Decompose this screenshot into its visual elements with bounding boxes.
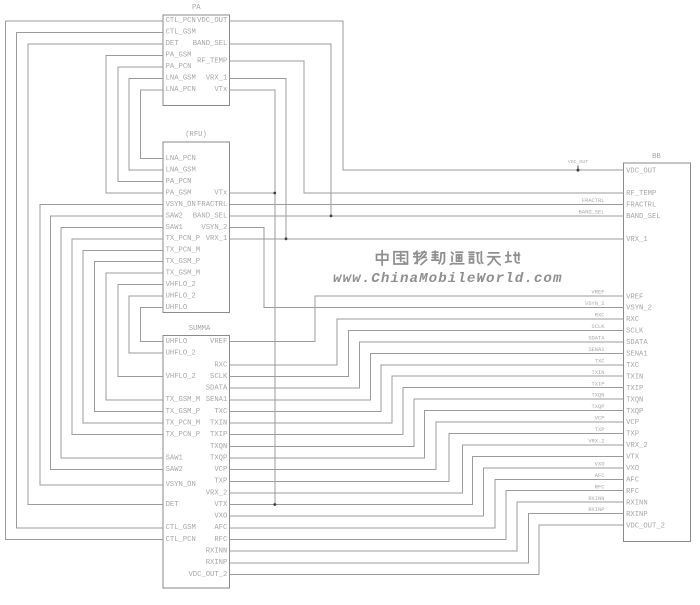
svg-text:TXC: TXC xyxy=(595,358,605,364)
svg-text:SDATA: SDATA xyxy=(206,385,228,393)
svg-text:VXO: VXO xyxy=(595,461,605,467)
svg-text:VSYN_2: VSYN_2 xyxy=(626,305,652,313)
svg-text:TXP: TXP xyxy=(214,478,227,486)
svg-text:VRX_1: VRX_1 xyxy=(206,75,228,83)
svg-text:RFC: RFC xyxy=(214,536,228,544)
svg-text:VSYN_ON: VSYN_ON xyxy=(166,481,196,489)
svg-text:VHFLO_2: VHFLO_2 xyxy=(166,281,196,289)
svg-text:VXO: VXO xyxy=(214,513,227,521)
svg-text:TXIN: TXIN xyxy=(626,373,643,381)
svg-text:TXQP: TXQP xyxy=(592,404,605,410)
svg-text:CTL_PCN: CTL_PCN xyxy=(166,17,196,25)
svg-text:TX_GSM_M: TX_GSM_M xyxy=(166,270,201,278)
svg-text:CTL_PCN: CTL_PCN xyxy=(166,536,196,544)
svg-text:RXINP: RXINP xyxy=(626,511,648,519)
svg-text:UHFLO_2: UHFLO_2 xyxy=(166,350,196,358)
svg-text:SUMMA: SUMMA xyxy=(189,325,211,333)
svg-text:BAND_SEL: BAND_SEL xyxy=(626,213,661,221)
svg-text:RXC: RXC xyxy=(626,316,640,324)
svg-text:VDC_OUT_2: VDC_OUT_2 xyxy=(626,522,665,530)
svg-text:RF_TEMP: RF_TEMP xyxy=(197,57,227,65)
svg-text:CTL_GSM: CTL_GSM xyxy=(166,29,196,37)
svg-text:SAW2: SAW2 xyxy=(166,212,183,220)
svg-text:VCP: VCP xyxy=(626,419,639,427)
svg-text:DET: DET xyxy=(166,501,180,509)
svg-text:RXC: RXC xyxy=(595,313,605,319)
svg-text:TX_PCN_P: TX_PCN_P xyxy=(166,235,201,243)
svg-text:SCLK: SCLK xyxy=(626,328,644,336)
svg-text:PA: PA xyxy=(192,4,201,12)
svg-text:RXINN: RXINN xyxy=(626,499,648,507)
svg-text:TX_PCN_M: TX_PCN_M xyxy=(166,419,201,427)
svg-text:LNA_GSM: LNA_GSM xyxy=(166,167,196,175)
svg-text:SENA1: SENA1 xyxy=(206,396,228,404)
svg-text:VTx: VTx xyxy=(214,189,227,197)
svg-text:BB: BB xyxy=(652,153,661,161)
svg-text:UHFLO: UHFLO xyxy=(166,304,188,312)
svg-text:PA_GSM: PA_GSM xyxy=(166,52,192,60)
svg-text:AFC: AFC xyxy=(626,476,640,484)
svg-text:VREF: VREF xyxy=(210,338,227,346)
svg-text:VRX_2: VRX_2 xyxy=(588,439,604,445)
svg-text:TX_GSM_P: TX_GSM_P xyxy=(166,408,201,416)
svg-text:DET: DET xyxy=(166,40,180,48)
svg-text:TXP: TXP xyxy=(595,427,605,433)
svg-text:VREF: VREF xyxy=(592,290,605,296)
svg-text:AFC: AFC xyxy=(214,524,228,532)
svg-text:VDC_OUT: VDC_OUT xyxy=(568,159,588,165)
svg-text:SAW2: SAW2 xyxy=(166,466,183,474)
svg-text:TX_GSM_P: TX_GSM_P xyxy=(166,258,201,266)
svg-text:LNA_PCN: LNA_PCN xyxy=(166,86,196,94)
svg-text:VCP: VCP xyxy=(595,416,605,422)
svg-text:RXINN: RXINN xyxy=(206,548,228,556)
svg-text:VTX: VTX xyxy=(626,454,640,462)
svg-text:TXQN: TXQN xyxy=(210,443,227,451)
svg-text:SDATA: SDATA xyxy=(588,335,605,341)
svg-text:TXIN: TXIN xyxy=(592,370,605,376)
svg-text:BAND_SEL: BAND_SEL xyxy=(193,212,228,220)
svg-text:FRACTRL: FRACTRL xyxy=(626,202,656,210)
svg-text:BAND_SEL: BAND_SEL xyxy=(579,210,605,216)
svg-text:TX_GSM_M: TX_GSM_M xyxy=(166,396,201,404)
svg-text:RXINN: RXINN xyxy=(588,496,604,502)
svg-text:VRX_1: VRX_1 xyxy=(626,236,648,244)
svg-text:RF_TEMP: RF_TEMP xyxy=(626,190,656,198)
svg-text:SAW1: SAW1 xyxy=(166,454,183,462)
svg-text:(RFU): (RFU) xyxy=(185,131,207,139)
svg-text:BAND_SEL: BAND_SEL xyxy=(193,40,228,48)
svg-text:VSYN_2: VSYN_2 xyxy=(585,301,604,307)
svg-text:UHFLO: UHFLO xyxy=(166,338,188,346)
svg-text:TXIP: TXIP xyxy=(592,381,605,387)
svg-text:VDC_OUT: VDC_OUT xyxy=(626,167,657,175)
svg-text:SAW1: SAW1 xyxy=(166,224,183,232)
svg-text:SCLK: SCLK xyxy=(592,324,606,330)
svg-text:SENA1: SENA1 xyxy=(626,351,648,359)
svg-text:UHFLO_2: UHFLO_2 xyxy=(166,292,196,300)
svg-text:PA_GSM: PA_GSM xyxy=(166,189,192,197)
svg-text:SENA1: SENA1 xyxy=(588,347,604,353)
svg-text:TXIN: TXIN xyxy=(210,419,227,427)
svg-text:RFC: RFC xyxy=(595,484,605,490)
svg-text:FRACTRL: FRACTRL xyxy=(197,201,227,209)
svg-text:SDATA: SDATA xyxy=(626,339,648,347)
svg-text:VDC_OUT_2: VDC_OUT_2 xyxy=(188,571,227,579)
svg-text:TXQN: TXQN xyxy=(592,393,605,399)
svg-text:TXIP: TXIP xyxy=(626,385,643,393)
svg-text:TX_PCN_P: TX_PCN_P xyxy=(166,431,201,439)
svg-text:VSYN_ON: VSYN_ON xyxy=(166,201,196,209)
svg-text:SCLK: SCLK xyxy=(210,373,228,381)
svg-text:TXC: TXC xyxy=(214,408,228,416)
svg-text:VRX_1: VRX_1 xyxy=(206,235,228,243)
svg-text:VSYN_2: VSYN_2 xyxy=(201,224,227,232)
svg-text:PA_PCN: PA_PCN xyxy=(166,63,192,71)
svg-text:LNA_PCN: LNA_PCN xyxy=(166,155,196,163)
svg-text:TXQN: TXQN xyxy=(626,396,643,404)
svg-text:RXC: RXC xyxy=(214,361,228,369)
svg-text:RXINP: RXINP xyxy=(588,507,604,513)
svg-text:VDC_OUT: VDC_OUT xyxy=(197,17,228,25)
svg-text:FRACTRL: FRACTRL xyxy=(582,198,605,204)
svg-text:VREF: VREF xyxy=(626,293,643,301)
svg-text:VCP: VCP xyxy=(214,466,227,474)
svg-text:VTx: VTx xyxy=(214,86,227,94)
svg-text:AFC: AFC xyxy=(595,473,605,479)
svg-text:RFC: RFC xyxy=(626,488,640,496)
svg-text:VHFLO_2: VHFLO_2 xyxy=(166,373,196,381)
svg-text:TXC: TXC xyxy=(626,362,640,370)
svg-text:VXO: VXO xyxy=(626,465,639,473)
svg-text:VTX: VTX xyxy=(214,501,228,509)
svg-text:VRX_2: VRX_2 xyxy=(626,442,648,450)
svg-text:TX_PCN_M: TX_PCN_M xyxy=(166,247,201,255)
svg-text:TXIP: TXIP xyxy=(210,431,227,439)
svg-text:VRX_2: VRX_2 xyxy=(206,489,228,497)
svg-text:RXINP: RXINP xyxy=(206,559,228,567)
svg-text:TXQP: TXQP xyxy=(210,454,227,462)
svg-text:CTL_GSM: CTL_GSM xyxy=(166,524,196,532)
svg-text:www.ChinaMobileWorld.com: www.ChinaMobileWorld.com xyxy=(333,271,563,287)
svg-text:LNA_GSM: LNA_GSM xyxy=(166,75,196,83)
svg-text:TXP: TXP xyxy=(626,431,639,439)
svg-text:TXQP: TXQP xyxy=(626,408,643,416)
svg-text:PA_PCN: PA_PCN xyxy=(166,178,192,186)
